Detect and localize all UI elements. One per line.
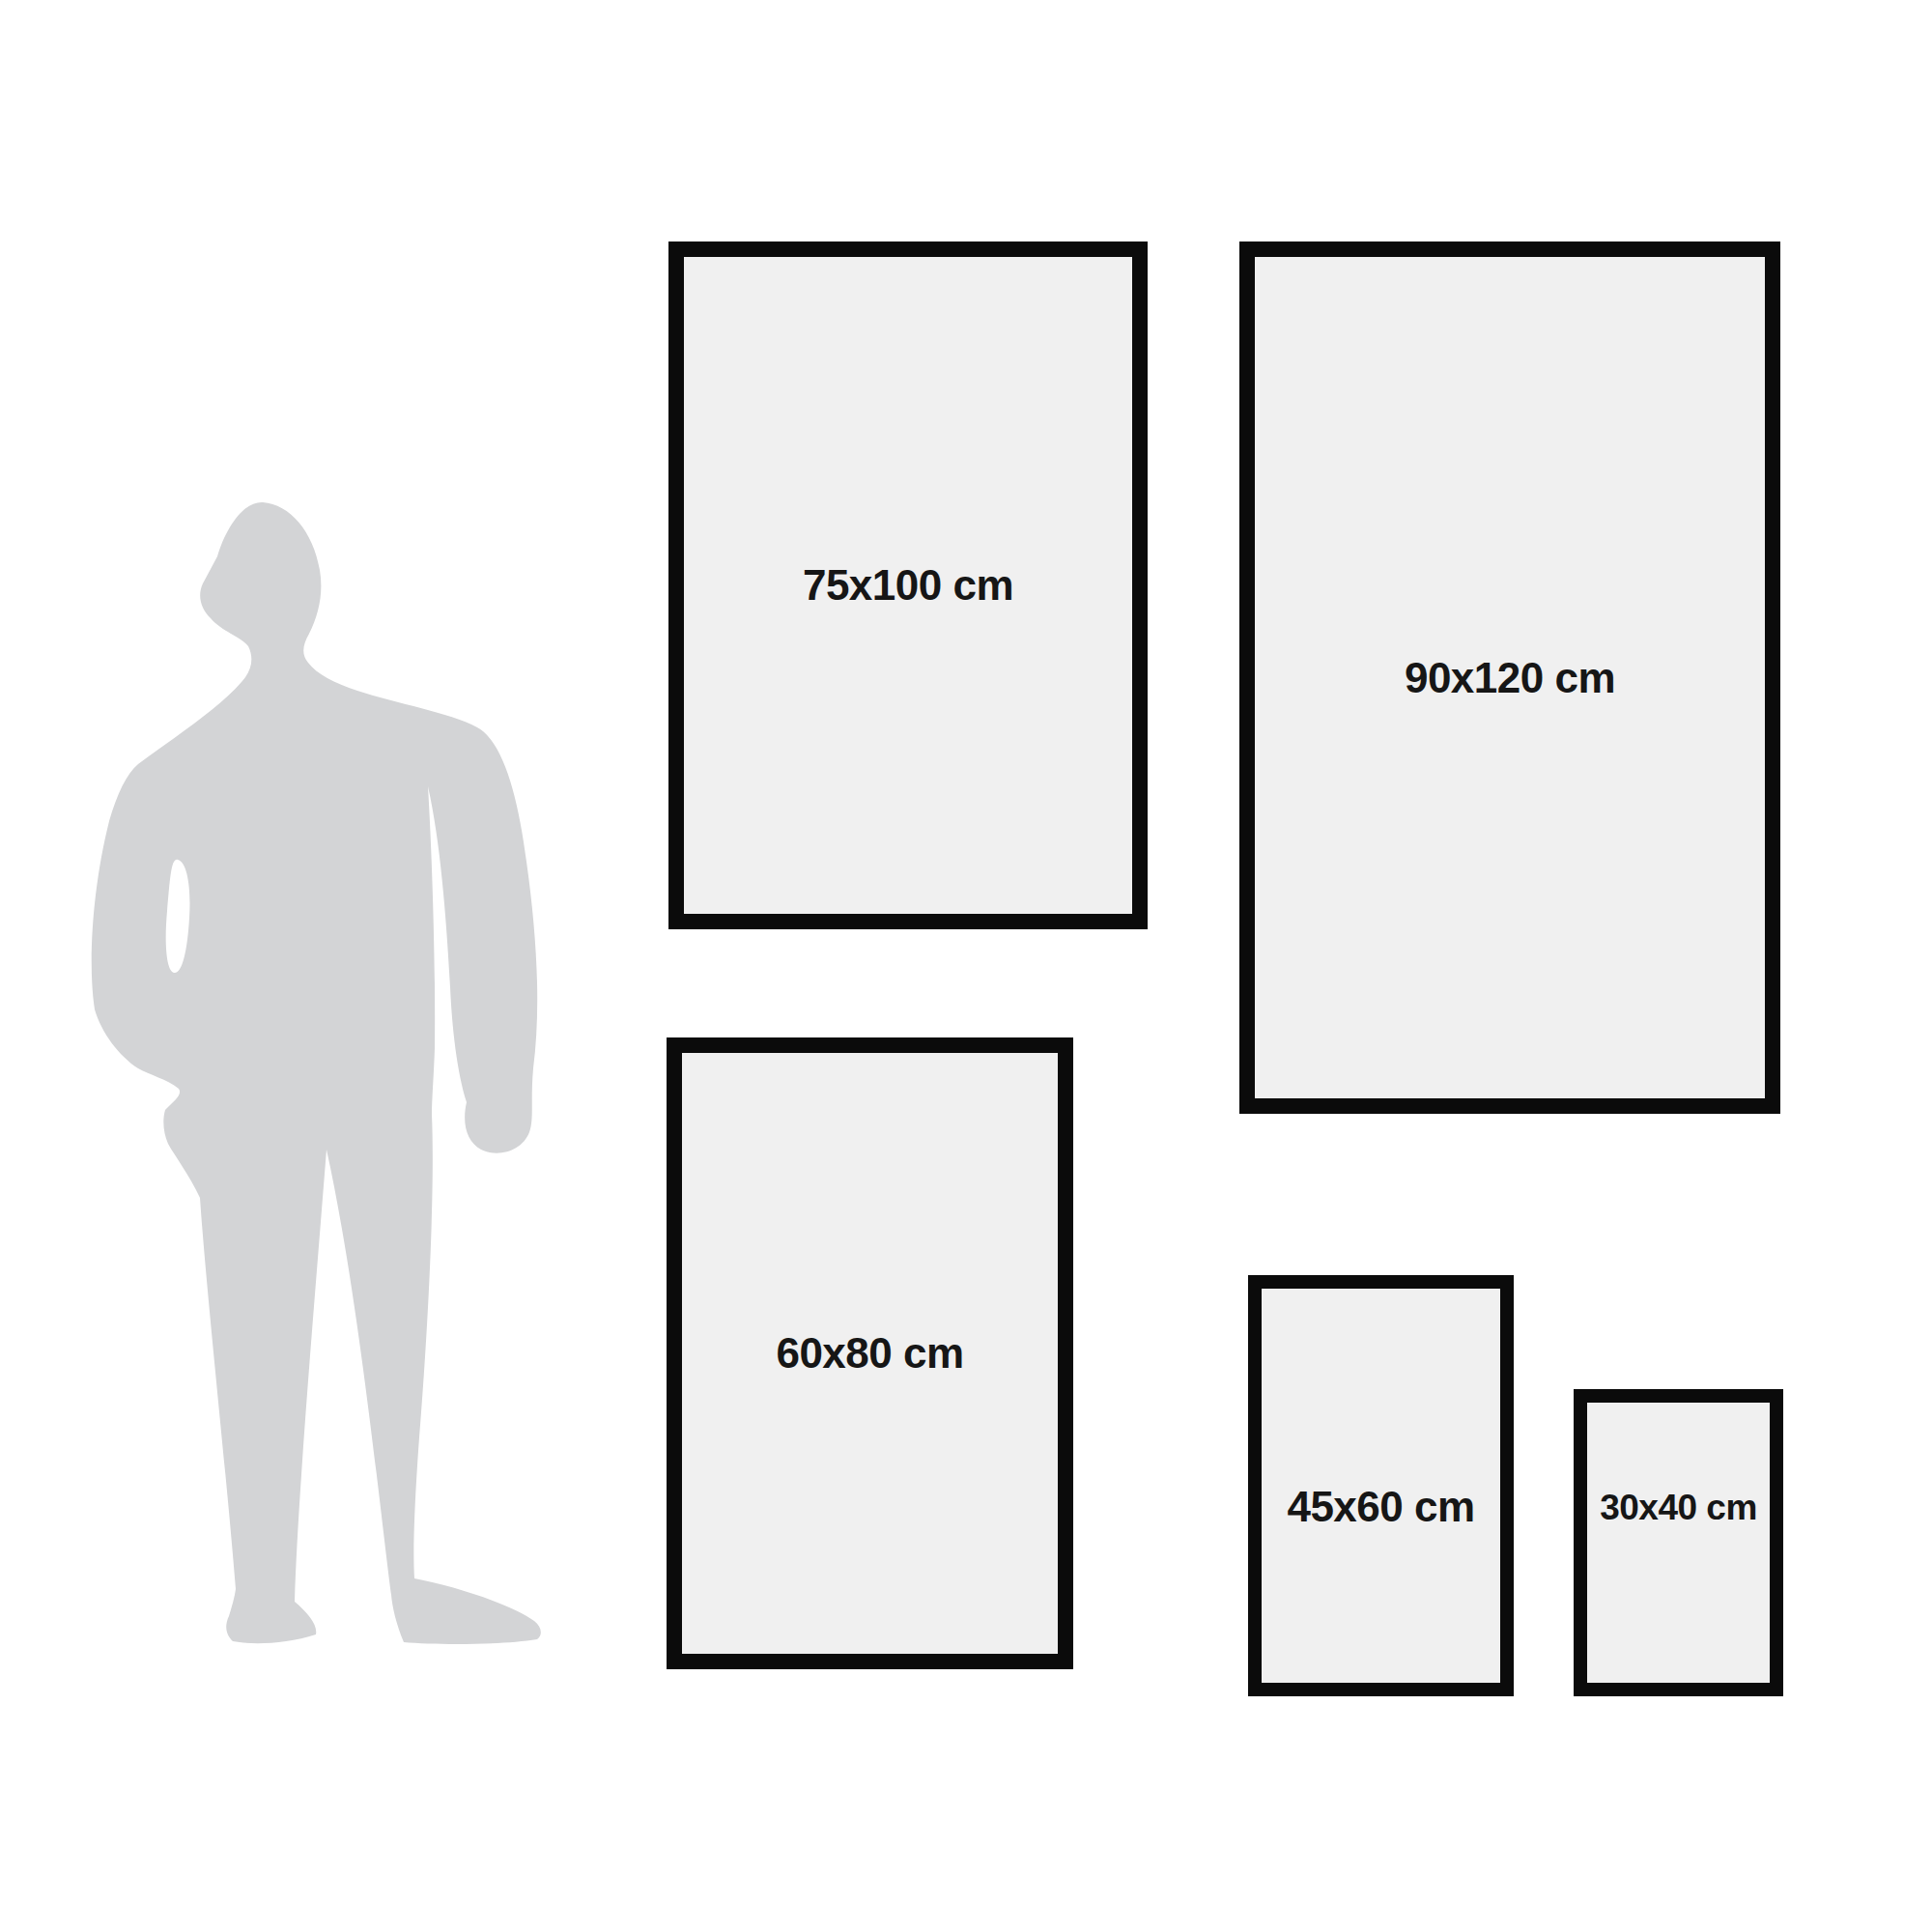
frame-45x60: 45x60 cm [1248, 1275, 1514, 1696]
frame-75x100: 75x100 cm [668, 241, 1148, 929]
size-guide-canvas: 75x100 cm 90x120 cm 60x80 cm 45x60 cm 30… [0, 0, 1932, 1932]
frame-size-label: 30x40 cm [1600, 1490, 1757, 1525]
frame-30x40: 30x40 cm [1574, 1389, 1783, 1696]
frame-90x120: 90x120 cm [1239, 241, 1780, 1114]
frame-60x80: 60x80 cm [667, 1037, 1073, 1669]
frame-size-label: 75x100 cm [803, 564, 1013, 607]
man-silhouette-shape [92, 502, 541, 1644]
frame-size-label: 45x60 cm [1287, 1486, 1474, 1528]
frame-size-label: 60x80 cm [776, 1332, 963, 1375]
frame-size-label: 90x120 cm [1405, 657, 1615, 699]
